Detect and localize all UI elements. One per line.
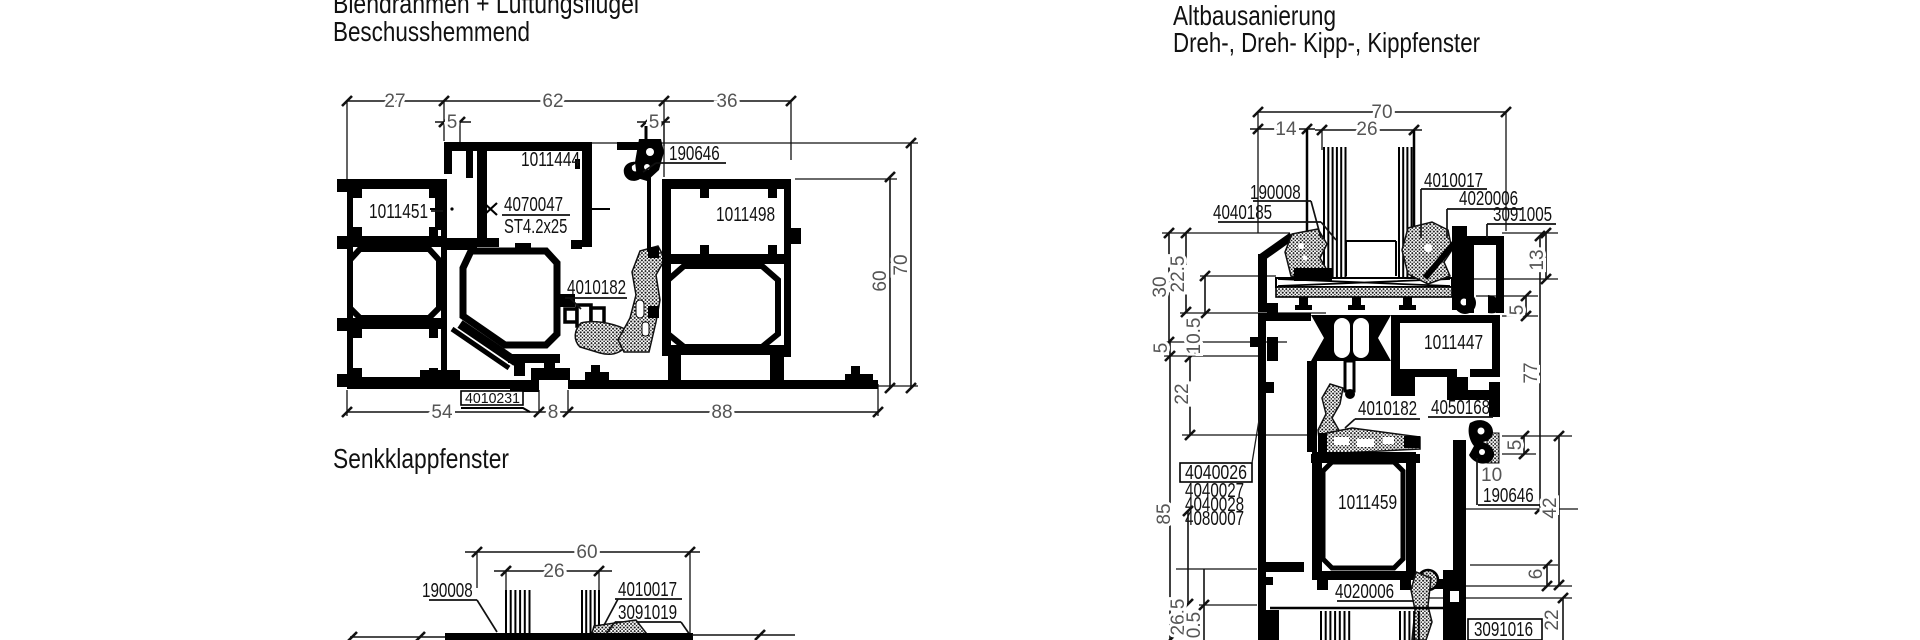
svg-text:6: 6	[1526, 569, 1547, 580]
svg-text:54: 54	[431, 402, 453, 423]
svg-text:5: 5	[447, 112, 458, 133]
svg-text:1011444: 1011444	[521, 149, 580, 171]
svg-text:10.5: 10.5	[1184, 318, 1205, 355]
svg-text:0.5: 0.5	[1184, 612, 1205, 638]
svg-text:1011459: 1011459	[1338, 492, 1397, 514]
svg-text:13: 13	[1527, 249, 1548, 270]
svg-text:70: 70	[891, 254, 912, 275]
svg-text:3091016: 3091016	[1474, 619, 1533, 640]
svg-text:27: 27	[384, 91, 405, 112]
svg-text:26: 26	[1356, 119, 1377, 140]
svg-text:3091005: 3091005	[1493, 204, 1552, 226]
svg-text:85: 85	[1154, 503, 1175, 524]
svg-text:5: 5	[649, 112, 660, 133]
svg-text:77: 77	[1521, 362, 1542, 383]
svg-text:36: 36	[716, 91, 737, 112]
svg-text:Beschusshemmend: Beschusshemmend	[333, 16, 530, 47]
svg-text:22: 22	[1172, 383, 1193, 404]
svg-text:4010231: 4010231	[465, 390, 520, 407]
svg-text:4070047: 4070047	[504, 194, 563, 216]
svg-text:4010182: 4010182	[1358, 398, 1417, 420]
svg-text:4010017: 4010017	[618, 579, 677, 601]
svg-text:4010182: 4010182	[567, 277, 626, 299]
svg-text:88: 88	[711, 402, 732, 423]
svg-text:60: 60	[870, 270, 891, 291]
svg-text:8: 8	[548, 402, 559, 423]
svg-text:14: 14	[1275, 119, 1297, 140]
svg-text:10: 10	[1481, 465, 1502, 486]
svg-text:190008: 190008	[422, 580, 473, 602]
svg-text:62: 62	[542, 91, 563, 112]
svg-text:190646: 190646	[669, 143, 720, 165]
svg-text:5: 5	[1507, 305, 1528, 316]
svg-text:4080007: 4080007	[1185, 508, 1244, 530]
svg-text:4020006: 4020006	[1335, 581, 1394, 603]
svg-text:5: 5	[1151, 343, 1172, 354]
svg-text:ST4.2x25: ST4.2x25	[504, 216, 567, 238]
svg-text:22: 22	[1542, 609, 1563, 630]
svg-text:60: 60	[576, 542, 597, 563]
svg-text:4050168: 4050168	[1431, 397, 1490, 419]
svg-text:5: 5	[1505, 440, 1526, 451]
svg-text:Dreh-, Dreh- Kipp-, Kippfenste: Dreh-, Dreh- Kipp-, Kippfenster	[1173, 27, 1480, 58]
svg-text:1011451: 1011451	[369, 201, 428, 223]
svg-text:1011447: 1011447	[1424, 332, 1483, 354]
svg-text:Senkklappfenster: Senkklappfenster	[333, 443, 509, 474]
svg-text:22.5: 22.5	[1168, 256, 1189, 293]
svg-text:4040185: 4040185	[1213, 202, 1272, 224]
svg-text:26: 26	[543, 561, 564, 582]
svg-text:42: 42	[1540, 497, 1561, 518]
svg-text:1011498: 1011498	[716, 204, 775, 226]
svg-text:190646: 190646	[1483, 485, 1534, 507]
